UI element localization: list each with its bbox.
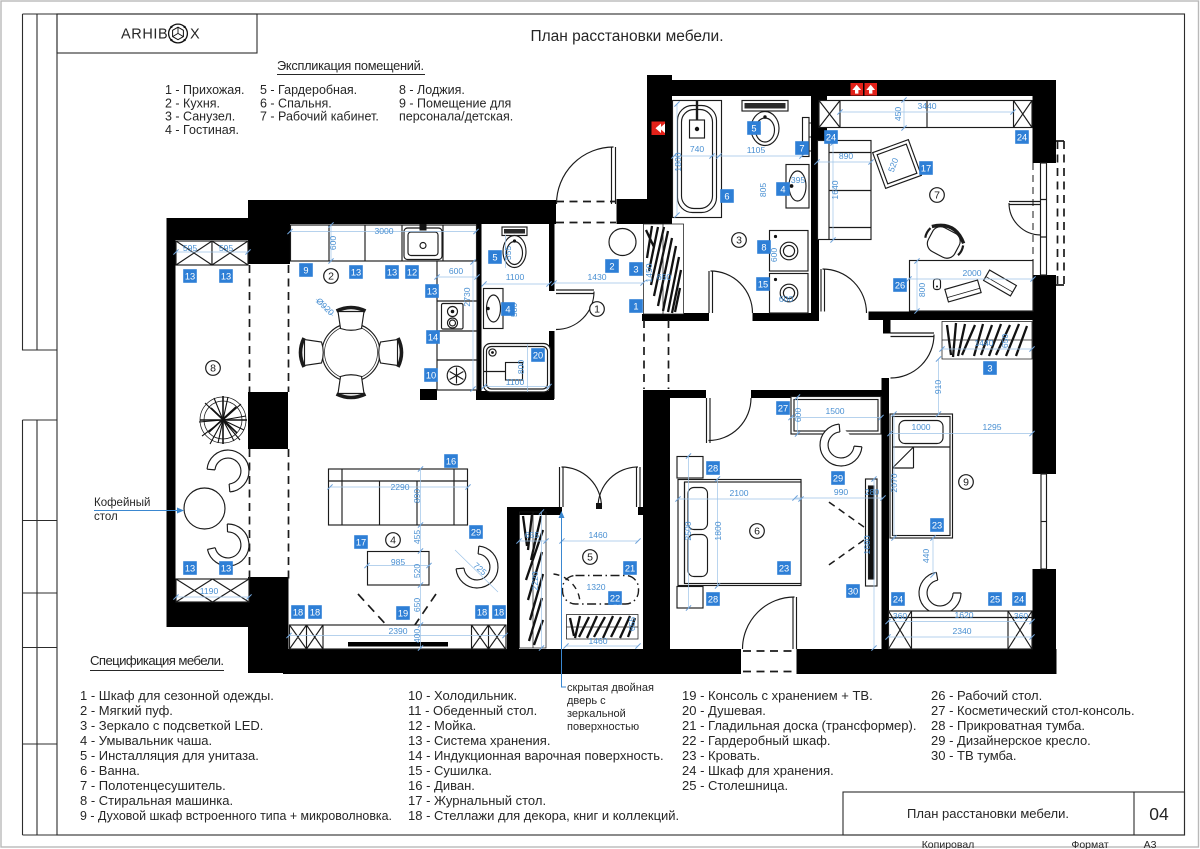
svg-text:04: 04 [1149, 804, 1169, 824]
svg-text:2 - Кухня.: 2 - Кухня. [165, 96, 220, 110]
svg-text:990: 990 [834, 487, 849, 497]
svg-text:29: 29 [471, 527, 481, 537]
svg-text:5 - Инсталляция для унитаза.: 5 - Инсталляция для унитаза. [80, 748, 259, 763]
svg-text:1295: 1295 [982, 422, 1001, 432]
svg-text:22: 22 [610, 593, 620, 603]
svg-text:27: 27 [778, 403, 788, 413]
svg-text:25: 25 [990, 594, 1000, 604]
svg-text:26: 26 [895, 280, 905, 290]
svg-text:3 - Зеркало с подсветкой LED: 3 - Зеркало с подсветкой LED. [80, 718, 263, 733]
svg-text:3440: 3440 [917, 101, 936, 111]
svg-text:2290: 2290 [390, 482, 409, 492]
svg-text:280: 280 [865, 487, 880, 497]
svg-text:395: 395 [791, 175, 806, 185]
svg-text:16 - Диван.: 16 - Диван. [408, 778, 475, 793]
svg-text:1440: 1440 [974, 338, 993, 348]
svg-text:стол: стол [94, 511, 118, 523]
svg-text:26 - Рабочий стол.: 26 - Рабочий стол. [931, 688, 1042, 703]
svg-text:1: 1 [633, 301, 638, 311]
svg-text:13: 13 [185, 563, 195, 573]
svg-text:13: 13 [387, 267, 397, 277]
svg-text:13: 13 [427, 286, 437, 296]
svg-text:7: 7 [934, 190, 940, 202]
svg-text:1620: 1620 [954, 610, 973, 620]
svg-text:2: 2 [609, 261, 614, 271]
svg-text:12: 12 [407, 267, 417, 277]
svg-text:455: 455 [412, 530, 422, 545]
svg-text:29: 29 [833, 473, 843, 483]
svg-text:1800: 1800 [713, 521, 723, 540]
svg-text:440: 440 [921, 549, 931, 564]
svg-text:14 - Индукционная варочная п: 14 - Индукционная варочная поверхность. [408, 748, 664, 763]
svg-text:1500: 1500 [825, 406, 844, 416]
svg-text:зеркальной: зеркальной [567, 708, 626, 720]
svg-text:805: 805 [758, 183, 768, 198]
svg-text:655: 655 [627, 617, 637, 632]
svg-text:8 - Стиральная машинка.: 8 - Стиральная машинка. [80, 793, 233, 808]
svg-text:2100: 2100 [729, 488, 748, 498]
svg-text:22 - Гардеробный шкаф.: 22 - Гардеробный шкаф. [682, 733, 831, 748]
svg-text:13: 13 [351, 267, 361, 277]
svg-text:23: 23 [779, 563, 789, 573]
svg-text:Спецификация мебели.: Спецификация мебели. [90, 653, 224, 668]
svg-text:19 - Консоль с хранением + Т: 19 - Консоль с хранением + ТВ. [682, 688, 873, 703]
svg-text:800: 800 [516, 360, 526, 375]
svg-text:450: 450 [893, 107, 903, 122]
svg-text:21: 21 [625, 563, 635, 573]
svg-text:890: 890 [839, 151, 854, 161]
svg-text:3 - Санузел.: 3 - Санузел. [165, 110, 235, 124]
svg-text:2000: 2000 [962, 268, 981, 278]
svg-text:1100: 1100 [506, 377, 525, 387]
svg-text:595: 595 [219, 243, 234, 253]
svg-text:16: 16 [446, 456, 456, 466]
svg-text:17 - Журнальный стол.: 17 - Журнальный стол. [408, 793, 546, 808]
svg-text:13: 13 [221, 271, 231, 281]
svg-text:27 - Косметический стол-конс: 27 - Косметический стол-консоль. [931, 703, 1135, 718]
svg-text:15: 15 [758, 279, 768, 289]
svg-text:18: 18 [293, 607, 303, 617]
svg-text:24: 24 [1014, 594, 1024, 604]
svg-text:3: 3 [633, 264, 638, 274]
svg-text:360: 360 [893, 611, 908, 621]
svg-text:30 - ТВ тумба.: 30 - ТВ тумба. [931, 748, 1016, 763]
svg-text:2: 2 [328, 271, 334, 283]
svg-text:А3: А3 [1144, 839, 1157, 849]
svg-text:3: 3 [987, 363, 992, 373]
svg-text:Формат: Формат [1071, 839, 1108, 849]
svg-text:7: 7 [799, 143, 804, 153]
svg-text:7 - Полотенцесушитель.: 7 - Полотенцесушитель. [80, 778, 226, 793]
svg-text:25 - Столешница.: 25 - Столешница. [682, 778, 788, 793]
svg-text:28 - Прикроватная тумба.: 28 - Прикроватная тумба. [931, 718, 1085, 733]
svg-text:3: 3 [736, 235, 742, 247]
svg-text:6 - Спальня.: 6 - Спальня. [260, 96, 332, 110]
svg-text:8: 8 [210, 363, 216, 375]
svg-text:24: 24 [893, 594, 903, 604]
svg-text:20: 20 [533, 350, 543, 360]
svg-text:X: X [190, 27, 200, 43]
svg-text:12 - Мойка.: 12 - Мойка. [408, 718, 476, 733]
svg-text:15 - Сушилка.: 15 - Сушилка. [408, 763, 492, 778]
svg-text:2340: 2340 [952, 626, 971, 636]
svg-text:555: 555 [503, 246, 513, 261]
svg-text:8 - Лоджия.: 8 - Лоджия. [399, 83, 465, 97]
svg-text:24 - Шкаф для хранения.: 24 - Шкаф для хранения. [682, 763, 834, 778]
svg-text:800: 800 [917, 283, 927, 298]
svg-text:7 - Рабочий кабинет.: 7 - Рабочий кабинет. [260, 110, 379, 124]
svg-text:24: 24 [826, 132, 836, 142]
svg-text:650: 650 [1000, 334, 1010, 349]
svg-text:600: 600 [449, 266, 464, 276]
svg-text:1320: 1320 [586, 582, 605, 592]
svg-text:1105: 1105 [747, 145, 766, 155]
svg-text:30: 30 [848, 586, 858, 596]
svg-text:360: 360 [1014, 611, 1029, 621]
svg-text:600: 600 [328, 236, 338, 251]
svg-text:19: 19 [398, 608, 408, 618]
svg-text:1 - Прихожая.: 1 - Прихожая. [165, 83, 244, 97]
svg-text:2500: 2500 [683, 521, 693, 540]
svg-text:1 - Шкаф для сезонной одежды: 1 - Шкаф для сезонной одежды. [80, 688, 274, 703]
svg-text:18 - Стеллажи для декора, кн: 18 - Стеллажи для декора, книг и коллекц… [408, 808, 679, 823]
svg-text:Экспликация помещений.: Экспликация помещений. [277, 58, 424, 73]
svg-text:План расстановки мебели.: План расстановки мебели. [907, 806, 1069, 821]
svg-text:дверь с: дверь с [567, 695, 606, 707]
svg-text:650: 650 [412, 598, 422, 613]
svg-text:1460: 1460 [588, 530, 607, 540]
svg-text:4: 4 [505, 304, 510, 314]
svg-text:1: 1 [594, 304, 600, 316]
svg-text:23: 23 [932, 520, 942, 530]
svg-text:1460: 1460 [588, 636, 607, 646]
svg-text:985: 985 [391, 557, 406, 567]
svg-text:5: 5 [587, 552, 593, 564]
svg-text:скрытая двойная: скрытая двойная [567, 682, 654, 694]
svg-text:4: 4 [780, 184, 785, 194]
svg-text:28: 28 [708, 594, 718, 604]
svg-text:4: 4 [390, 535, 396, 547]
svg-text:650: 650 [657, 272, 672, 282]
svg-text:9 - Помещение для: 9 - Помещение для [399, 96, 511, 110]
svg-text:1100: 1100 [506, 272, 525, 282]
svg-text:1000: 1000 [911, 422, 930, 432]
svg-text:2070: 2070 [889, 473, 899, 492]
svg-text:890: 890 [412, 489, 422, 504]
svg-text:29 - Дизайнерское кресло.: 29 - Дизайнерское кресло. [931, 733, 1091, 748]
svg-text:21 - Гладильная доска (транс: 21 - Гладильная доска (трансформер). [682, 718, 916, 733]
svg-text:17: 17 [921, 163, 931, 173]
svg-text:14: 14 [428, 332, 438, 342]
svg-text:3000: 3000 [374, 226, 393, 236]
svg-text:План расстановки мебели.: План расстановки мебели. [530, 28, 723, 45]
svg-text:23 - Кровать.: 23 - Кровать. [682, 748, 760, 763]
svg-text:13: 13 [185, 271, 195, 281]
svg-text:1640: 1640 [830, 180, 840, 199]
svg-text:24: 24 [1017, 132, 1027, 142]
svg-text:20 - Душевая.: 20 - Душевая. [682, 703, 766, 718]
svg-text:6: 6 [724, 191, 729, 201]
svg-text:13: 13 [221, 563, 231, 573]
svg-text:18: 18 [477, 607, 487, 617]
svg-text:18: 18 [310, 607, 320, 617]
svg-text:18: 18 [494, 607, 504, 617]
svg-text:4 - Умывальник чаша.: 4 - Умывальник чаша. [80, 733, 212, 748]
svg-text:600: 600 [793, 408, 803, 423]
svg-text:10 - Холодильник.: 10 - Холодильник. [408, 688, 517, 703]
svg-text:400: 400 [412, 629, 422, 644]
svg-text:5: 5 [751, 123, 756, 133]
svg-text:1680: 1680 [862, 535, 872, 554]
svg-text:11 - Обеденный стол.: 11 - Обеденный стол. [408, 703, 537, 718]
svg-text:1190: 1190 [200, 586, 219, 596]
svg-text:600: 600 [779, 294, 794, 304]
svg-text:ARHIB: ARHIB [121, 27, 168, 43]
svg-text:520: 520 [412, 564, 422, 579]
svg-text:персонала/детская.: персонала/детская. [399, 110, 513, 124]
svg-text:поверхностью: поверхностью [567, 721, 639, 733]
svg-text:10: 10 [426, 370, 436, 380]
svg-text:2390: 2390 [388, 626, 407, 636]
svg-text:17: 17 [356, 537, 366, 547]
svg-text:9 - Духовой шкаф встроенного: 9 - Духовой шкаф встроенного типа + микр… [80, 808, 392, 823]
svg-text:2 - Мягкий пуф.: 2 - Мягкий пуф. [80, 703, 173, 718]
svg-text:4 - Гостиная.: 4 - Гостиная. [165, 123, 239, 137]
svg-text:910: 910 [933, 380, 943, 395]
svg-text:Кофейный: Кофейный [94, 497, 150, 509]
svg-text:5 - Гардеробная.: 5 - Гардеробная. [260, 83, 357, 97]
svg-text:28: 28 [708, 463, 718, 473]
svg-text:1450: 1450 [644, 263, 654, 282]
svg-text:2730: 2730 [462, 287, 472, 306]
svg-text:9: 9 [963, 477, 969, 489]
svg-text:5: 5 [492, 252, 497, 262]
svg-text:6: 6 [754, 526, 760, 538]
svg-text:13 - Система хранения.: 13 - Система хранения. [408, 733, 550, 748]
svg-text:655: 655 [525, 530, 540, 540]
svg-text:9: 9 [303, 265, 308, 275]
svg-text:1430: 1430 [587, 272, 606, 282]
svg-text:6 - Ванна.: 6 - Ванна. [80, 763, 140, 778]
svg-text:595: 595 [183, 243, 198, 253]
svg-text:8: 8 [761, 242, 766, 252]
svg-text:2220: 2220 [530, 571, 540, 590]
svg-text:740: 740 [690, 144, 705, 154]
svg-text:Копировал: Копировал [922, 839, 975, 849]
